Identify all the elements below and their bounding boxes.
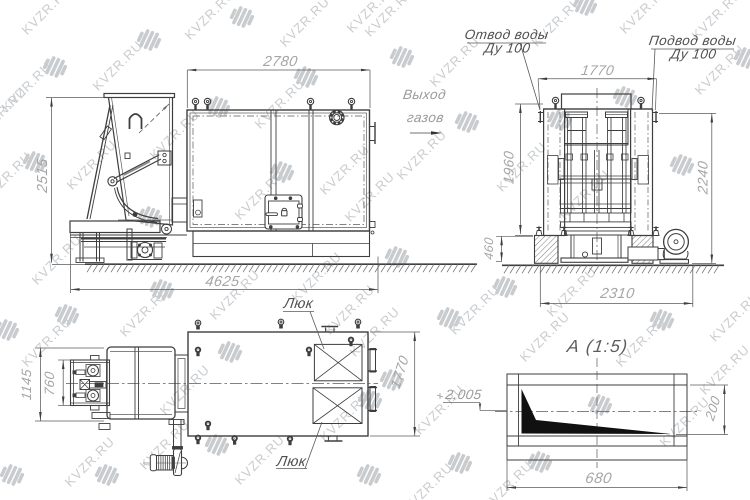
svg-text:2780: 2780 bbox=[261, 54, 298, 70]
svg-text:Люк: Люк bbox=[275, 454, 308, 470]
svg-text:460: 460 bbox=[482, 236, 496, 260]
svg-text:1770: 1770 bbox=[580, 62, 615, 78]
svg-text:газов: газов bbox=[406, 110, 445, 125]
svg-text:1145: 1145 bbox=[19, 368, 34, 401]
svg-text:Выход: Выход bbox=[402, 87, 447, 102]
svg-text:2,005: 2,005 bbox=[443, 387, 482, 402]
svg-text:4625: 4625 bbox=[204, 274, 241, 290]
svg-text:760: 760 bbox=[42, 370, 57, 396]
svg-text:2310: 2310 bbox=[598, 286, 635, 302]
svg-text:Люк: Люк bbox=[282, 296, 315, 312]
svg-text:1960: 1960 bbox=[501, 150, 517, 185]
svg-text:А (1:5): А (1:5) bbox=[565, 336, 630, 356]
svg-text:2515: 2515 bbox=[35, 157, 51, 195]
svg-text:2240: 2240 bbox=[695, 160, 711, 196]
svg-text:680: 680 bbox=[584, 470, 613, 487]
